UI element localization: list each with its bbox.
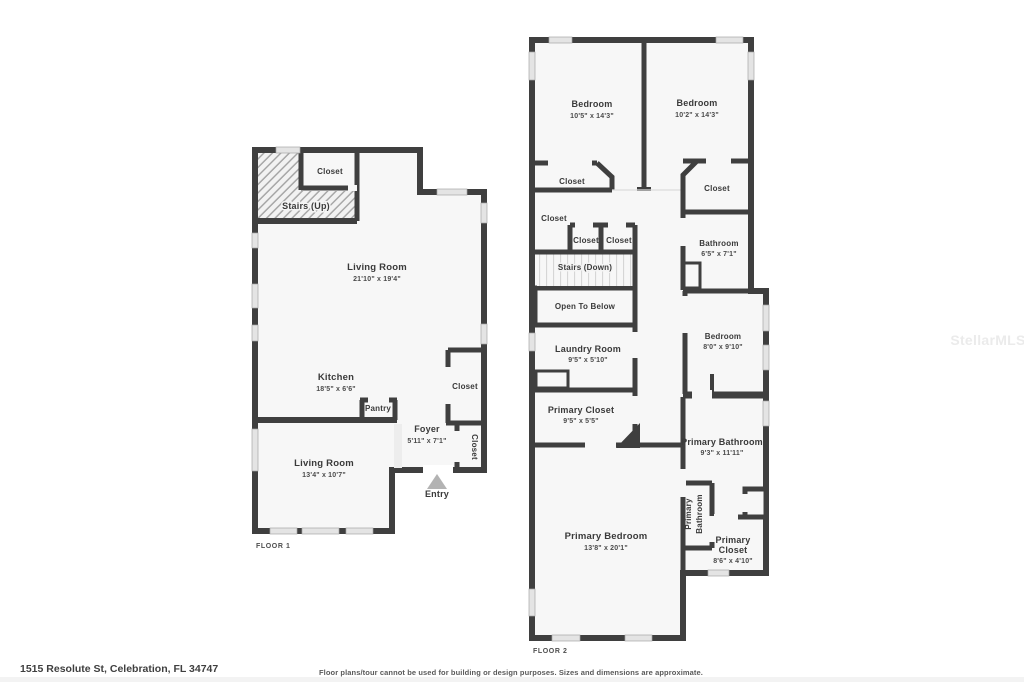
room-label-floor1-pantry: Pantry — [365, 404, 391, 413]
room-label-floor2-closet-hall: Closet — [541, 214, 567, 223]
room-label-floor2-primary-bathroom: Primary Bathroom — [681, 437, 763, 447]
room-label-floor2-bedroom-left: Bedroom — [572, 99, 613, 109]
entry-label: Entry — [425, 489, 449, 499]
room-label-floor2-laundry: Laundry Room — [555, 344, 621, 354]
room-label-floor2-closet-below-left-bedroom: Closet — [559, 177, 585, 186]
room-dims-floor1-foyer: 5'11" x 7'1" — [407, 438, 446, 445]
room-dims-floor2-primary-closet: 9'5" x 5'5" — [563, 418, 599, 425]
room-label-floor1-closet-entry: Closet — [470, 434, 479, 460]
room-dims-floor1-kitchen: 18'5" x 6'6" — [316, 386, 356, 393]
room-dims-floor2-primary-bathroom: 9'3" x 11'11" — [701, 450, 744, 457]
floor-plan-canvas: Closet Stairs (Up) Living Room 21'10" x … — [0, 0, 1024, 682]
room-dims-floor2-primary-closet-2: 8'6" x 4'10" — [713, 558, 753, 565]
room-dims-floor2-bedroom-left: 10'5" x 14'3" — [570, 113, 614, 120]
room-label-floor1-closet-right: Closet — [452, 382, 478, 391]
room-label-floor2-primary-closet-2-line1: Primary — [716, 535, 751, 545]
footer-strip — [0, 677, 1024, 682]
room-label-floor2-stairs-down: Stairs (Down) — [558, 263, 612, 272]
room-dims-floor2-bedroom-right: 10'2" x 14'3" — [675, 112, 719, 119]
room-label-floor2-open-to-below: Open To Below — [555, 302, 616, 311]
room-label-floor2-bedroom-right: Bedroom — [677, 98, 718, 108]
room-label-floor2-closet-below-right-bedroom: Closet — [704, 184, 730, 193]
property-address: 1515 Resolute St, Celebration, FL 34747 — [20, 663, 218, 675]
room-label-floor2-primary-closet: Primary Closet — [548, 405, 614, 415]
watermark: StellarMLS — [950, 332, 1024, 348]
room-label-floor2-primary-closet-2-line2: Closet — [719, 545, 748, 555]
floor1-title: FLOOR 1 — [256, 543, 291, 550]
floor-2-plan: Bedroom 10'5" x 14'3" Bedroom 10'2" x 14… — [529, 37, 769, 655]
room-dims-floor1-living-main: 21'10" x 19'4" — [353, 276, 401, 283]
room-label-floor2-primary-bathroom-small-line2: Bathroom — [695, 494, 704, 533]
floor2-title: FLOOR 2 — [533, 648, 568, 655]
room-label-floor1-closet-top: Closet — [317, 167, 343, 176]
room-dims-floor2-bathroom: 6'5" x 7'1" — [701, 251, 737, 258]
room-label-floor1-living-lower: Living Room — [294, 458, 354, 469]
room-label-floor2-primary-bedroom: Primary Bedroom — [565, 531, 648, 542]
room-dims-floor2-bedroom-small: 8'0" x 9'10" — [703, 344, 743, 351]
floor-1-plan: Closet Stairs (Up) Living Room 21'10" x … — [252, 147, 487, 550]
room-label-floor1-kitchen: Kitchen — [318, 372, 354, 383]
entry-arrow-icon — [427, 474, 447, 489]
room-dims-floor2-laundry: 9'5" x 5'10" — [568, 357, 608, 364]
room-dims-floor1-living-lower: 13'4" x 10'7" — [302, 472, 346, 479]
room-label-floor2-closet-small-2: Closet — [606, 236, 632, 245]
room-label-floor1-foyer: Foyer — [414, 424, 440, 434]
room-label-floor1-living-main: Living Room — [347, 262, 407, 273]
disclaimer-text: Floor plans/tour cannot be used for buil… — [319, 668, 703, 677]
room-dims-floor2-primary-bedroom: 13'8" x 20'1" — [584, 545, 628, 552]
floor-plan-page: Closet Stairs (Up) Living Room 21'10" x … — [0, 0, 1024, 682]
room-label-floor2-primary-bathroom-small-line1: Primary — [684, 498, 693, 530]
room-label-floor2-bathroom: Bathroom — [699, 239, 738, 248]
room-label-floor1-stairs-up: Stairs (Up) — [282, 201, 330, 211]
room-label-floor2-closet-small-1: Closet — [573, 236, 599, 245]
room-label-floor2-bedroom-small: Bedroom — [705, 332, 742, 341]
